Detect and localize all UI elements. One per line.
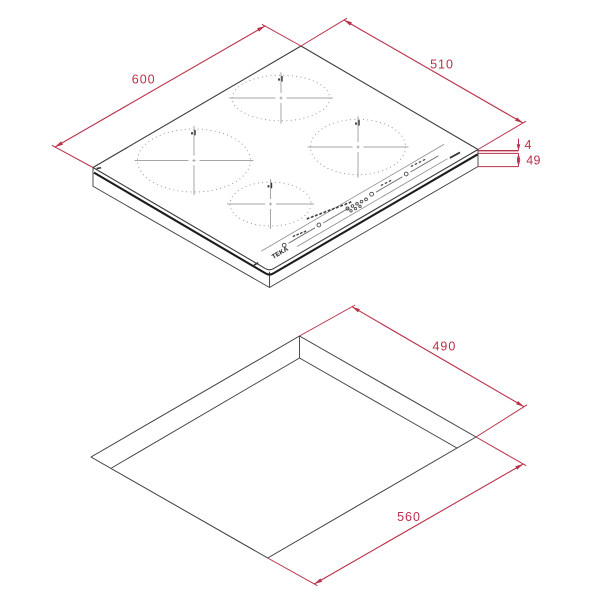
svg-text:510: 510 [430,58,454,72]
svg-text:49: 49 [526,154,541,168]
svg-text:490: 490 [432,340,456,354]
svg-text:4: 4 [525,138,532,152]
svg-text:600: 600 [132,73,156,87]
svg-text:560: 560 [397,510,421,524]
